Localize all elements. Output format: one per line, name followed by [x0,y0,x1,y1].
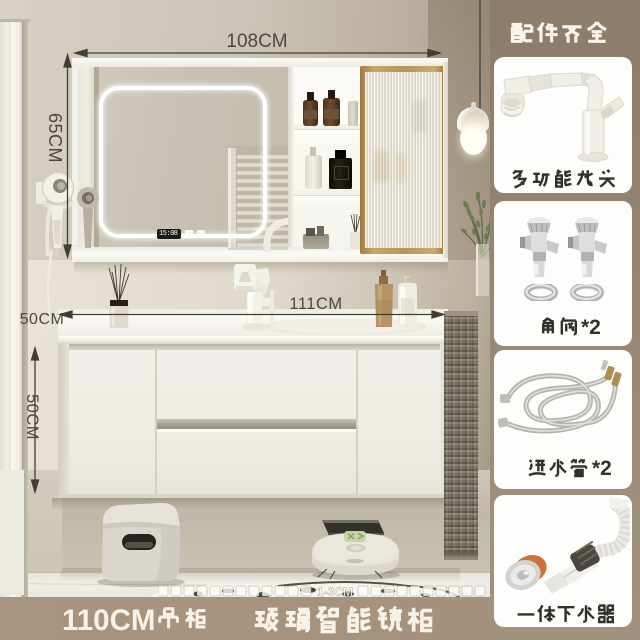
svg-text:108CM: 108CM [226,31,287,52]
svg-text:50CM: 50CM [20,311,65,328]
svg-text:65CM: 65CM [45,113,65,163]
svg-text:111CM: 111CM [289,295,342,313]
svg-text:50CM: 50CM [23,394,41,440]
